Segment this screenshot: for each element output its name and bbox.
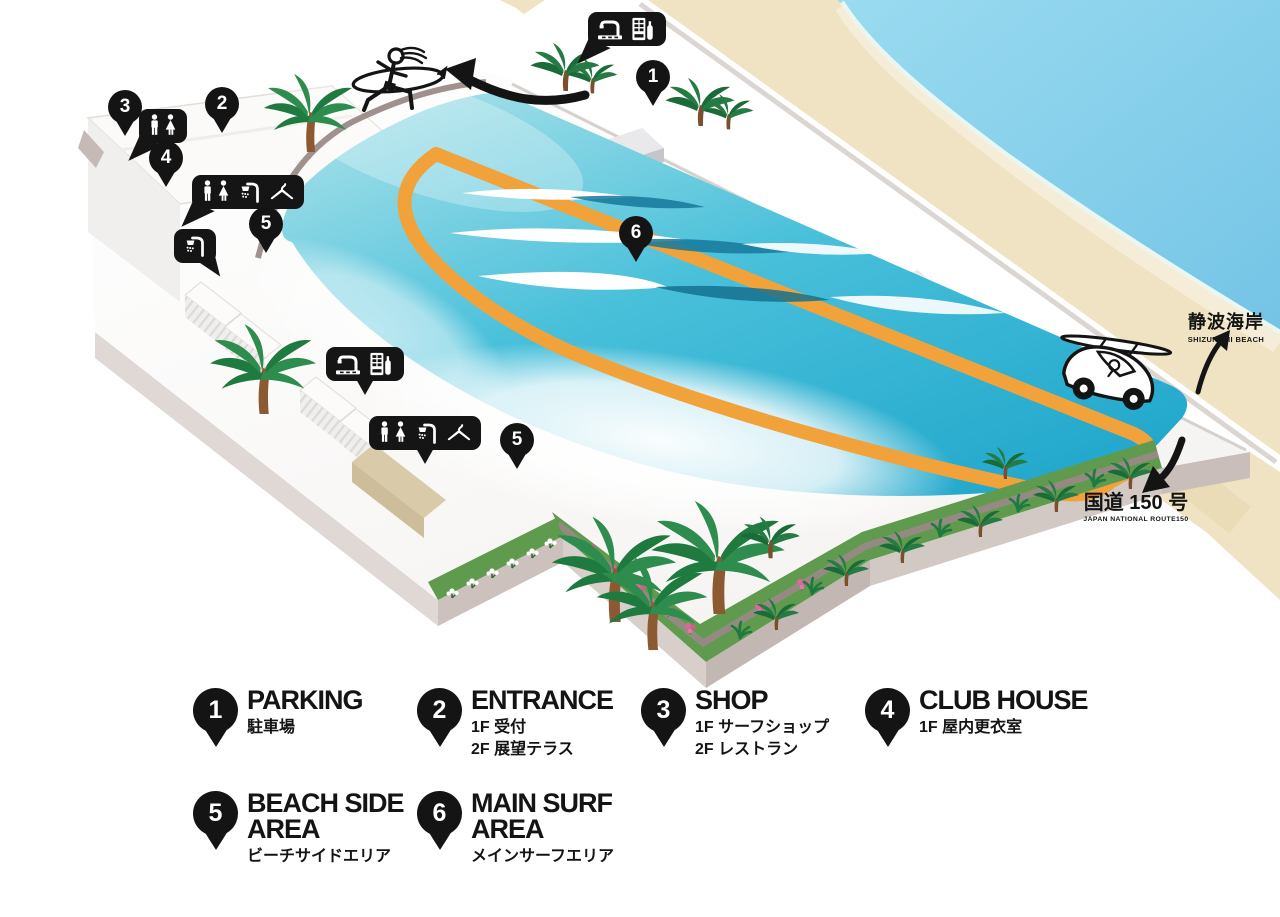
foot-shower-icon bbox=[597, 17, 623, 41]
legend-subtitle: ビーチサイドエリア bbox=[247, 847, 404, 868]
route-label-en: JAPAN NATIONAL ROUTE150 bbox=[1072, 516, 1200, 523]
legend-item-6: 6 MAIN SURFAREA メインサーフエリア bbox=[417, 789, 641, 867]
beach-label-en: SHIZUNAMI BEACH bbox=[1168, 335, 1280, 344]
legend-subtitle: 1F 屋内更衣室 bbox=[919, 718, 1088, 739]
surf-stadium-map-page: 1234556 静波海岸 SHIZUNAMI BEACH 国道 150 号 JA… bbox=[0, 0, 1280, 917]
route-150-label: 国道 150 号 JAPAN NATIONAL ROUTE150 bbox=[1072, 486, 1200, 523]
legend-item-3: 3 SHOP 1F サーフショップ2F レストラン bbox=[641, 686, 865, 761]
beach-label-jp: 静波海岸 bbox=[1168, 308, 1280, 334]
amenity-bubble bbox=[174, 229, 216, 263]
legend-pin-icon: 3 bbox=[641, 688, 686, 747]
shower-icon bbox=[183, 234, 207, 258]
shower-icon bbox=[415, 421, 439, 445]
map-pin-6: 6 bbox=[619, 216, 653, 262]
map-pin-5: 5 bbox=[249, 207, 283, 253]
amenity-bubble bbox=[369, 416, 481, 450]
legend-title: SHOP bbox=[695, 688, 829, 714]
shizunami-beach-label: 静波海岸 SHIZUNAMI BEACH bbox=[1168, 308, 1280, 344]
legend-item-5: 5 BEACH SIDEAREA ビーチサイドエリア bbox=[193, 789, 417, 867]
shower-icon bbox=[238, 180, 262, 204]
map-pin-1: 1 bbox=[636, 60, 670, 106]
amenity-bubble bbox=[139, 109, 187, 143]
restroom-icon bbox=[201, 180, 231, 204]
map-pin-3: 3 bbox=[108, 90, 142, 136]
legend-pin-number: 4 bbox=[865, 688, 910, 733]
route-label-jp: 国道 150 号 bbox=[1072, 486, 1200, 515]
legend-title: CLUB HOUSE bbox=[919, 688, 1088, 714]
legend-item-4: 4 CLUB HOUSE 1F 屋内更衣室 bbox=[865, 686, 1089, 761]
legend-subtitle: 1F サーフショップ2F レストラン bbox=[695, 718, 829, 762]
restroom-icon bbox=[148, 114, 178, 138]
legend-pin-icon: 4 bbox=[865, 688, 910, 747]
legend-item-1: 1 PARKING 駐車場 bbox=[193, 686, 417, 761]
hanger-icon bbox=[269, 180, 295, 204]
legend-pin-icon: 5 bbox=[193, 791, 238, 850]
legend-subtitle: メインサーフエリア bbox=[471, 847, 614, 868]
legend-subtitle: 駐車場 bbox=[247, 718, 363, 739]
legend-title: MAIN SURFAREA bbox=[471, 791, 614, 842]
legend-pin-icon: 2 bbox=[417, 688, 462, 747]
legend-title: ENTRANCE bbox=[471, 688, 613, 714]
legend-pin-number: 6 bbox=[417, 791, 462, 836]
legend-item-2: 2 ENTRANCE 1F 受付2F 展望テラス bbox=[417, 686, 641, 761]
hanger-icon bbox=[446, 421, 472, 445]
amenity-bubble bbox=[588, 12, 666, 46]
legend-pin-icon: 1 bbox=[193, 688, 238, 747]
legend: 1 PARKING 駐車場 2 ENTRANCE 1F 受付2F 展望テラス 3 bbox=[193, 686, 1089, 867]
legend-pin-number: 5 bbox=[193, 791, 238, 836]
legend-pin-number: 2 bbox=[417, 688, 462, 733]
vending-machine-icon bbox=[630, 17, 657, 41]
legend-pin-number: 3 bbox=[641, 688, 686, 733]
map-pin-5: 5 bbox=[500, 423, 534, 469]
foot-shower-icon bbox=[335, 352, 361, 376]
restroom-icon bbox=[378, 421, 408, 445]
vending-machine-icon bbox=[368, 352, 395, 376]
legend-pin-icon: 6 bbox=[417, 791, 462, 850]
amenity-bubble bbox=[192, 175, 304, 209]
legend-pin-number: 1 bbox=[193, 688, 238, 733]
amenity-bubble bbox=[326, 347, 404, 381]
legend-title: PARKING bbox=[247, 688, 363, 714]
legend-subtitle: 1F 受付2F 展望テラス bbox=[471, 718, 613, 762]
legend-title: BEACH SIDEAREA bbox=[247, 791, 404, 842]
map-pin-2: 2 bbox=[205, 87, 239, 133]
map-pin-4: 4 bbox=[149, 141, 183, 187]
